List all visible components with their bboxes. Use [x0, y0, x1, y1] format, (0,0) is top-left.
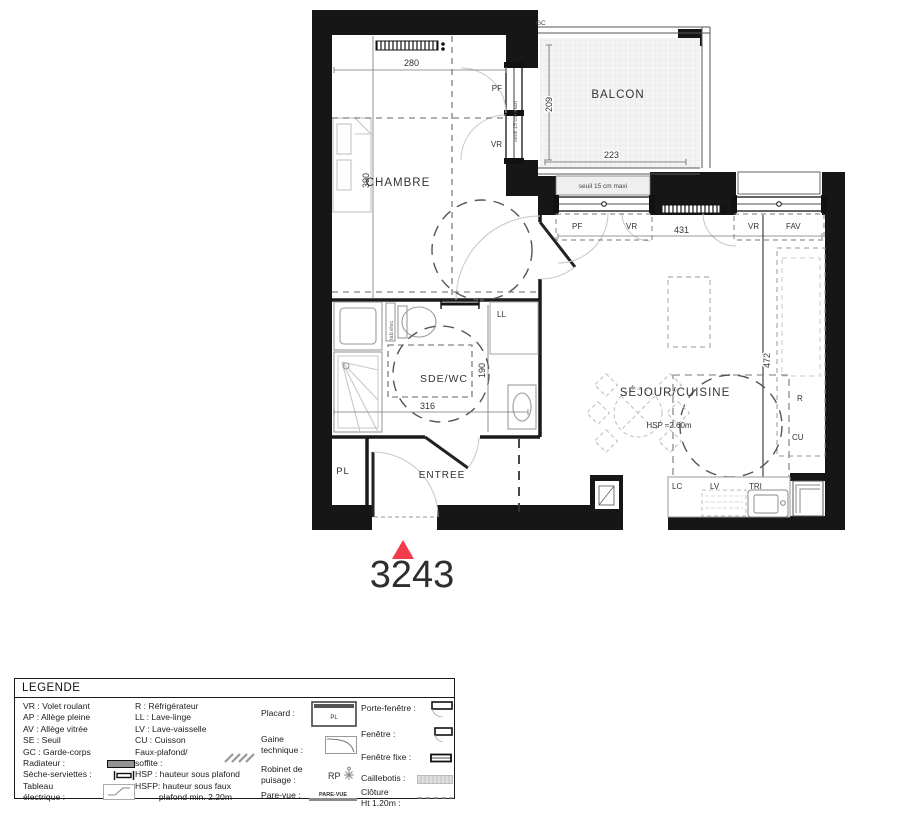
sde-door-leaf: [425, 437, 468, 468]
interior-walls: [332, 215, 540, 505]
tri-label: TRI: [749, 482, 762, 491]
caillebotis-symbol: [417, 775, 453, 784]
electric-panel-symbol: [103, 784, 135, 800]
legend-item: Porte-fenêtre :: [361, 703, 416, 714]
chambre-dims: [334, 36, 506, 298]
window-zone-boxes: [556, 214, 824, 347]
legend-item: Clôture Ht 1.20m :: [361, 787, 401, 810]
floor-plan: GC 209 223 BALCON seuil 15 cm maxi seuil…: [0, 0, 910, 660]
legend-title-row: LEGENDE: [15, 679, 454, 698]
legend-item: Robinet de puisage :: [261, 764, 303, 787]
chambre-label: CHAMBRE: [366, 177, 431, 189]
sejour-porte-fenetre: [553, 195, 655, 213]
pl-label: PL: [336, 466, 350, 477]
sde-zone: [388, 345, 472, 397]
bed: [333, 118, 371, 212]
sejour-door-leaf: [540, 222, 575, 267]
washbasin: [508, 385, 536, 429]
legend-item: LV : Lave-vaisselle: [135, 724, 207, 735]
window-sill: [738, 172, 820, 194]
sde-label: SDE/WC: [420, 373, 468, 385]
kitchen-counter-bottom: LC LV TRI: [668, 477, 790, 517]
legend-item: R : Réfrigérateur: [135, 701, 199, 712]
legend-item: Tableau électrique :: [23, 781, 65, 804]
gc-label: GC: [536, 20, 546, 27]
legend-column-4: Porte-fenêtre : Fenêtre : Fenêtre fixe :…: [361, 701, 453, 820]
unit-number[interactable]: 3243: [370, 554, 455, 596]
pare-vue-symbol-text: PARE-VUE: [319, 792, 347, 798]
legend-item: CU : Cuisson: [135, 735, 186, 746]
seuil-label: seuil 15 cm maxi: [579, 183, 627, 190]
balcony: GC 209 223 BALCON: [536, 20, 710, 174]
lv-label: LV: [710, 482, 720, 491]
floor-plan-page: { "colors": { "accent": "#f43b4b" }, "un…: [0, 0, 910, 800]
legend-item: Radiateur :: [23, 758, 65, 769]
legend-item: AP : Allège pleine: [23, 712, 90, 723]
refrigerator-label: R: [797, 394, 803, 403]
unit-marker[interactable]: 3243: [370, 540, 455, 596]
pf-label-chambre: PF: [492, 84, 502, 93]
ll-label: LL: [497, 310, 506, 319]
sde-height-dim: 190: [477, 363, 487, 378]
sejour-width-dim: 431: [674, 225, 689, 235]
sejour-height-dim: 472: [762, 353, 772, 368]
balcony-height-dim: 209: [544, 97, 554, 112]
hsp-label: HSP ≈2.60m: [646, 421, 691, 430]
pare-vue-symbol: PARE-VUE: [309, 790, 357, 803]
entree-label: ENTREE: [419, 470, 466, 481]
pf-label-sejour: PF: [572, 222, 582, 231]
porte-fenetre-symbol: [427, 701, 453, 717]
gaine-technique: [793, 481, 823, 516]
chambre-porte-fenetre: seuil 15 cm maxi: [504, 62, 524, 164]
kitchen-counter-right: [777, 248, 825, 456]
fav-label: FAV: [786, 222, 801, 231]
fenetre-fixe-symbol: [429, 753, 453, 763]
legend-item: GC : Garde-corps: [23, 747, 91, 758]
legend-item: SE : Seuil: [23, 735, 61, 746]
legend-item: Fenêtre fixe :: [361, 752, 411, 763]
gaine-technique-symbol: [325, 736, 357, 754]
vr-label-sejour2: VR: [748, 222, 759, 231]
legend-item: HSP : hauteur sous plafond: [135, 769, 240, 780]
vr-label-chambre: VR: [491, 140, 502, 149]
sde-width-dim: 316: [420, 401, 435, 411]
turning-circle-chambre: [432, 200, 532, 300]
sejour-label: SÉJOUR/CUISINE: [620, 386, 731, 399]
tab-elec-label: tab.élec: [389, 320, 395, 340]
legend-column-3: Placard : PL Gaine technique : Robinet d…: [261, 701, 357, 810]
balcon-label: BALCON: [591, 89, 644, 101]
towel-dryer-symbol: [113, 771, 135, 780]
dining-table: [587, 374, 690, 453]
legend-item: Fenêtre :: [361, 729, 395, 740]
sejour-fenetre: [731, 195, 827, 213]
legend-column-1: VR : Volet roulant AP : Allège pleine AV…: [23, 701, 135, 804]
meter-box: [595, 481, 619, 509]
legend-panel: LEGENDE VR : Volet roulant AP : Allège p…: [14, 678, 455, 799]
rp-symbol-text: RP: [328, 771, 341, 781]
legend-item: Caillebotis :: [361, 773, 405, 784]
legend-item: HSFP: hauteur sous faux plafond min. 2.2…: [135, 781, 232, 804]
caillebotis-floor: [540, 38, 700, 168]
legend-item: Gaine technique :: [261, 734, 303, 757]
seuil-vertical-label: seuil 15 cm maxi: [513, 101, 519, 142]
radiator-symbol: [107, 760, 135, 768]
legend-item: LL : Lave-linge: [135, 712, 191, 723]
lc-label: LC: [672, 482, 682, 491]
legend-item: Placard :: [261, 708, 295, 719]
radiator-sejour: [662, 205, 720, 213]
sejour-room: PF VR VR FAV 431 472 R CU SÉJ: [556, 205, 825, 517]
cuisson-label: CU: [792, 433, 804, 442]
legend-title: LEGENDE: [22, 682, 80, 694]
balcony-width-dim: 223: [604, 150, 619, 160]
legend-item: Pare-vue :: [261, 790, 301, 801]
chambre-width-dim: 280: [404, 58, 419, 68]
sde-room: tab.élec LL SDE/WC 316 190: [334, 299, 538, 432]
placard-symbol: PL: [311, 701, 357, 727]
legend-item: VR : Volet roulant: [23, 701, 90, 712]
radiator-chambre: [376, 41, 438, 50]
legend-column-2: R : Réfrigérateur LL : Lave-linge LV : L…: [135, 701, 259, 804]
legend-item: AV : Allège vitrée: [23, 724, 88, 735]
vr-label-sejour1: VR: [626, 222, 637, 231]
legend-item: Faux-plafond/ soffite :: [135, 747, 188, 770]
fenetre-symbol: [429, 727, 453, 742]
robinet-puisage-symbol: RP: [327, 766, 357, 784]
entree-zone: ENTREE PL: [336, 439, 519, 516]
placard-symbol-text: PL: [330, 715, 338, 721]
soffite-symbol: [221, 752, 259, 764]
legend-item: Sèche-serviettes :: [23, 769, 92, 780]
